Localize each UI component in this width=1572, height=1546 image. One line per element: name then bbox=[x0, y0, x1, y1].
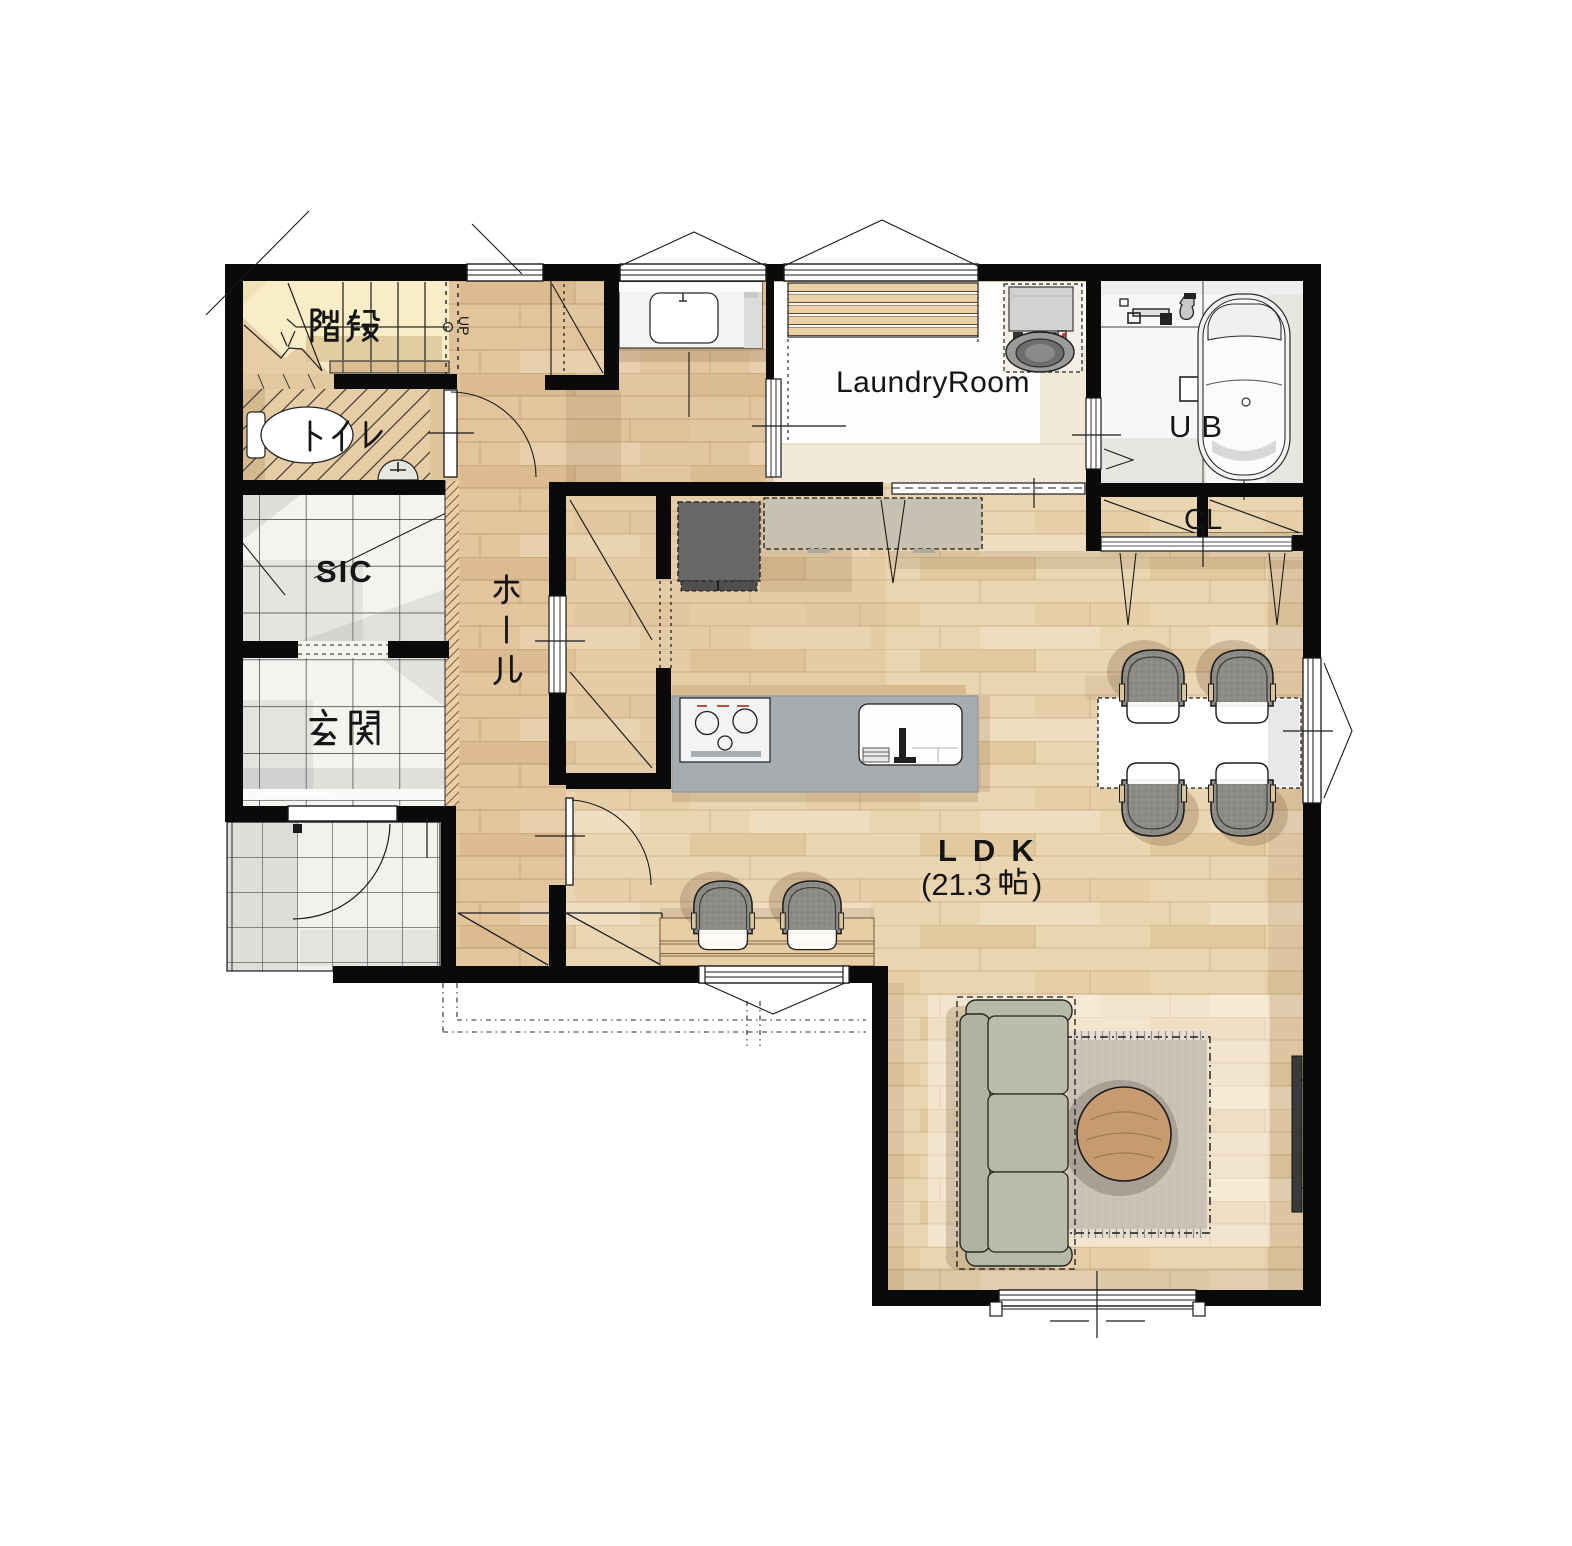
svg-text:SIC: SIC bbox=[316, 554, 374, 589]
svg-text:(21.3: (21.3 bbox=[921, 867, 992, 902]
svg-text:LDK: LDK bbox=[938, 833, 1050, 868]
svg-text:UP: UP bbox=[456, 316, 472, 335]
svg-text:UB: UB bbox=[1169, 409, 1232, 444]
svg-text:): ) bbox=[1032, 867, 1042, 902]
svg-text:LaundryRoom: LaundryRoom bbox=[836, 366, 1030, 399]
svg-text:CL: CL bbox=[1184, 504, 1223, 536]
